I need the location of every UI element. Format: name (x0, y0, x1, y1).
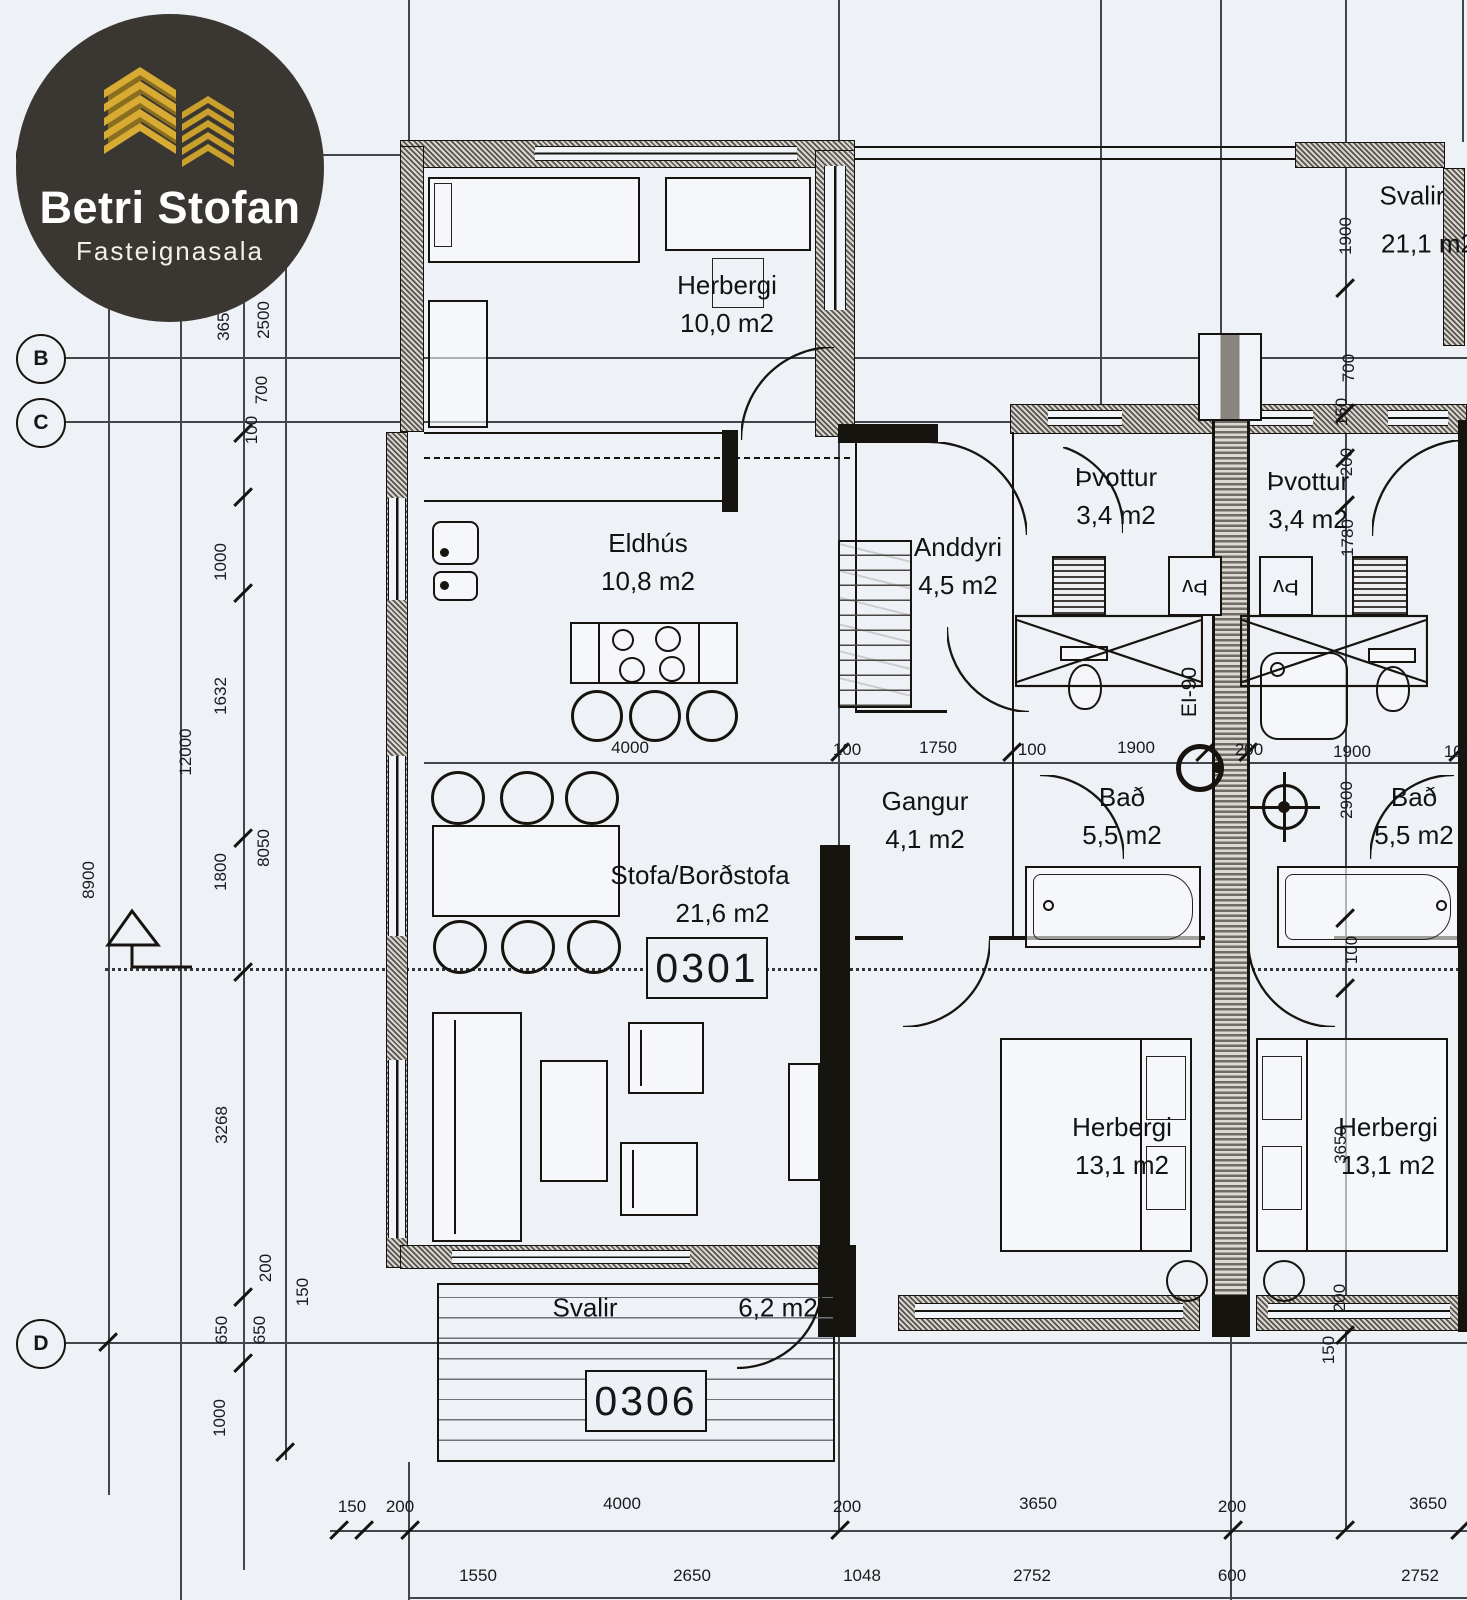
arc-path (741, 347, 834, 440)
dimension-label: 4000 (603, 1494, 641, 1514)
dining-chair (501, 920, 555, 974)
dim-row-line (408, 1597, 1467, 1599)
room-area: 4,1 m2 (882, 820, 969, 858)
room-area: 13,1 m2 (1072, 1146, 1172, 1184)
counter-x-left (1015, 612, 1203, 690)
room-name: Bað (1374, 778, 1454, 816)
dining-table (432, 825, 620, 917)
dim-chain-line (408, 0, 410, 140)
armchair-line (632, 1150, 634, 1208)
window-living-2 (388, 1060, 406, 1238)
text-label: Svalir (552, 1293, 617, 1324)
room-name: Þvottur (1075, 458, 1157, 496)
dimension-label: 1900 (1117, 738, 1155, 758)
room-label: Herbergi13,1 m2 (1338, 1108, 1438, 1184)
room-name: Anddyri (914, 528, 1002, 566)
dimension-label: 650 (212, 1316, 232, 1344)
room-name: Eldhús (601, 524, 695, 562)
island-divider (698, 622, 700, 684)
dimension-label: 200 (1218, 1497, 1246, 1517)
text-label: EI-90 (1178, 667, 1202, 717)
tub-drain (1436, 900, 1447, 911)
room-area: 10,8 m2 (601, 562, 695, 600)
appliance-knob (440, 581, 449, 590)
dimension-label: 2752 (1013, 1566, 1051, 1586)
unit-number-label: 0306 (594, 1378, 697, 1425)
burner (655, 626, 681, 652)
sofa-back-line (454, 1020, 456, 1234)
dimension-label: 4000 (611, 738, 649, 758)
arc-path (947, 627, 1029, 712)
room-area: 4,5 m2 (914, 566, 1002, 604)
dining-chair (431, 771, 485, 825)
arc-path (1248, 940, 1335, 1027)
dimension-label: 1750 (919, 738, 957, 758)
text-label: 6,2 m2 (738, 1293, 818, 1324)
building-small (182, 96, 234, 167)
bar-stool (571, 690, 623, 742)
dimension-label: 600 (1218, 1566, 1246, 1586)
window-bedroom-side (824, 166, 846, 310)
bar-stool (629, 690, 681, 742)
right-edge-wall (1458, 420, 1467, 1332)
door-arc-bedroom-left (903, 940, 990, 1027)
room-name: Herbergi (1072, 1108, 1172, 1146)
arrow-tail (132, 945, 192, 967)
party-wall-foot (1212, 1295, 1250, 1337)
dimension-label: 200 (256, 1254, 276, 1282)
entry-wall (838, 424, 938, 443)
room-name: Bað (1082, 778, 1162, 816)
dimension-label: 2752 (1401, 1566, 1439, 1586)
door-arc-bedroom-right (1248, 940, 1335, 1027)
pillow (1262, 1146, 1302, 1210)
basin-dot (1278, 801, 1290, 813)
dimension-label: 1900 (1336, 217, 1356, 255)
room-name: Gangur (882, 782, 969, 820)
section-arrow (100, 905, 200, 975)
burner (612, 629, 634, 651)
buildings-icon (90, 66, 250, 174)
room-label: Þvottur3,4 m2 (1075, 458, 1157, 534)
dimension-label: 150 (293, 1278, 313, 1306)
party-wall-cap (1198, 333, 1262, 421)
exterior-wall-left-upper (400, 146, 424, 432)
dimension-label: 2900 (1337, 781, 1357, 819)
dim-row-line (330, 1530, 1467, 1532)
room-area: 3,4 m2 (1267, 500, 1349, 538)
room-name: Stofa/Borðstofa (610, 856, 789, 894)
dimension-label: 2500 (254, 301, 274, 339)
kitchen-top-wall (424, 432, 722, 434)
dimension-label: 200 (1235, 740, 1263, 760)
pillow (1262, 1056, 1302, 1120)
bedside-table (1263, 1260, 1305, 1302)
grid-bubble-d: D (16, 1319, 66, 1369)
dimension-label: 1048 (843, 1566, 881, 1586)
agency-logo: Betri Stofan Fasteignasala (16, 14, 324, 322)
coat-closet (838, 540, 912, 708)
room-area: 13,1 m2 (1338, 1146, 1438, 1184)
dimension-label: 3268 (212, 1106, 232, 1144)
wardrobe-top-bedroom (428, 300, 488, 428)
room-label: Gangur4,1 m2 (882, 782, 969, 858)
dimension-label: 150 (1319, 1336, 1339, 1364)
dimension-label: 8050 (254, 829, 274, 867)
logo-title: Betri Stofan (39, 182, 300, 234)
room-label: Bað5,5 m2 (1374, 778, 1454, 854)
bathtub-inner (1033, 874, 1193, 940)
bar-stool (686, 690, 738, 742)
window-living-bottom (452, 1250, 690, 1264)
dim-row-line (424, 762, 1467, 764)
window-thvottur-left (1048, 410, 1122, 426)
sofa (432, 1012, 522, 1242)
sink-knob (440, 548, 449, 557)
kitchen-sink-unit (432, 521, 479, 565)
dimension-label: 200 (833, 1497, 861, 1517)
anddyri-bottom-wall (855, 710, 947, 713)
text-label: Þv (1273, 574, 1299, 600)
dimension-label: 8900 (79, 861, 99, 899)
room-area: 10,0 m2 (677, 304, 777, 342)
unit-number-0301: 0301 (646, 937, 768, 999)
headboard-line (1306, 1040, 1308, 1250)
dimension-label: 100 (1018, 740, 1046, 760)
dimension-label: 100 (242, 416, 262, 444)
grid-bubble-b: B (16, 334, 66, 384)
counter-edge (424, 500, 738, 502)
dimension-label: 12000 (176, 728, 196, 775)
island-divider (598, 622, 600, 684)
dimension-label: 100 (1444, 742, 1467, 762)
dining-chair (433, 920, 487, 974)
bedside-table (1166, 1260, 1208, 1302)
text-label: 21,1 m2 (1381, 229, 1467, 260)
dimension-label: 200 (386, 1497, 414, 1517)
dimension-label: 1550 (459, 1566, 497, 1586)
arc-path (930, 442, 1027, 535)
room-label: Anddyri4,5 m2 (914, 528, 1002, 604)
unit-number-0306: 0306 (585, 1370, 707, 1432)
dimension-label: 3650 (1409, 1494, 1447, 1514)
logo-subtitle: Fasteignasala (76, 236, 264, 267)
room-label: Stofa/Borðstofa21,6 m2 (610, 856, 789, 932)
dimension-label: 100 (833, 740, 861, 760)
exterior-wall-top-right (1295, 142, 1445, 168)
dimension-label: 150 (338, 1497, 366, 1517)
unit-number-label: 0301 (655, 945, 758, 992)
window-svalir-right (1388, 410, 1448, 426)
dimension-label: 3650 (1019, 1494, 1057, 1514)
dimension-label: 1000 (210, 1399, 230, 1437)
room-label: Bað5,5 m2 (1082, 778, 1162, 854)
arrow-triangle (108, 911, 158, 945)
arc-path (903, 940, 990, 1027)
room-area: 3,4 m2 (1075, 496, 1157, 534)
dimension-label: 200 (1330, 1284, 1350, 1312)
bed-top (428, 177, 640, 263)
dim-chain-line (285, 108, 287, 1460)
dimension-label: 700 (1339, 354, 1359, 382)
dryer-left (1052, 556, 1106, 616)
window-bedroom-left (915, 1303, 1183, 1319)
burner (659, 656, 685, 682)
chevron (182, 96, 234, 119)
armchair-line (640, 1030, 642, 1086)
counter-x-right (1240, 612, 1428, 690)
desk (665, 177, 811, 251)
tub-drain (1043, 900, 1054, 911)
room-area: 5,5 m2 (1374, 816, 1454, 854)
kitchen-island (570, 622, 738, 684)
dimension-label: 1632 (211, 677, 231, 715)
dining-chair (565, 771, 619, 825)
dimension-label: 150 (1332, 398, 1352, 426)
door-arc-entry-right (1372, 440, 1462, 536)
bedroom-top-wall-1 (855, 936, 903, 940)
window-top-bedroom (535, 146, 797, 161)
room-name: Herbergi (1338, 1108, 1438, 1146)
dim-chain-line (1462, 0, 1464, 142)
arc-path (1372, 440, 1462, 536)
window-bedroom-right (1268, 1303, 1450, 1319)
dining-chair (500, 771, 554, 825)
room-area: 21,6 m2 (655, 894, 789, 932)
dimension-label: 2650 (673, 1566, 711, 1586)
tv-bench (788, 1063, 820, 1181)
room-name: Herbergi (677, 266, 777, 304)
window-living-1 (388, 756, 406, 936)
dimension-label: 1000 (211, 543, 231, 581)
room-label: Eldhús10,8 m2 (601, 524, 695, 600)
room-name: Þvottur (1267, 462, 1349, 500)
dimension-label: 650 (250, 1316, 270, 1344)
coffee-table (540, 1060, 608, 1182)
dim-chain-line (1100, 0, 1102, 418)
dim-chain-line (1230, 1335, 1232, 1600)
text-label: Þv (1182, 574, 1208, 600)
grid-bubble-c: C (16, 398, 66, 448)
dimension-label: 700 (252, 376, 272, 404)
pillow (434, 183, 452, 247)
dimension-label: 100 (1342, 936, 1362, 964)
text-label: Svalir (1379, 181, 1444, 212)
room-label: Þvottur3,4 m2 (1267, 462, 1349, 538)
room-label: Herbergi10,0 m2 (677, 266, 777, 342)
living-right-wall (820, 845, 850, 1269)
upper-cabinet-dashed (424, 457, 850, 459)
room-label: Herbergi13,1 m2 (1072, 1108, 1172, 1184)
dimension-label: 1900 (1333, 742, 1371, 762)
dryer-right (1352, 556, 1408, 616)
door-arc-entrance (930, 442, 1027, 535)
dimension-label: 1800 (211, 853, 231, 891)
door-arc-bedroom-top (741, 347, 834, 440)
window-kitchen (388, 498, 406, 600)
room-area: 5,5 m2 (1082, 816, 1162, 854)
floor-plan: 0301 0306 ABCD 1900150200365025007001001… (0, 0, 1467, 1600)
dim-chain-line (1220, 0, 1222, 333)
bathtub-inner (1285, 874, 1451, 940)
door-arc-anddyri (947, 627, 1029, 712)
drain-dot (1212, 762, 1223, 773)
burner (619, 657, 645, 683)
